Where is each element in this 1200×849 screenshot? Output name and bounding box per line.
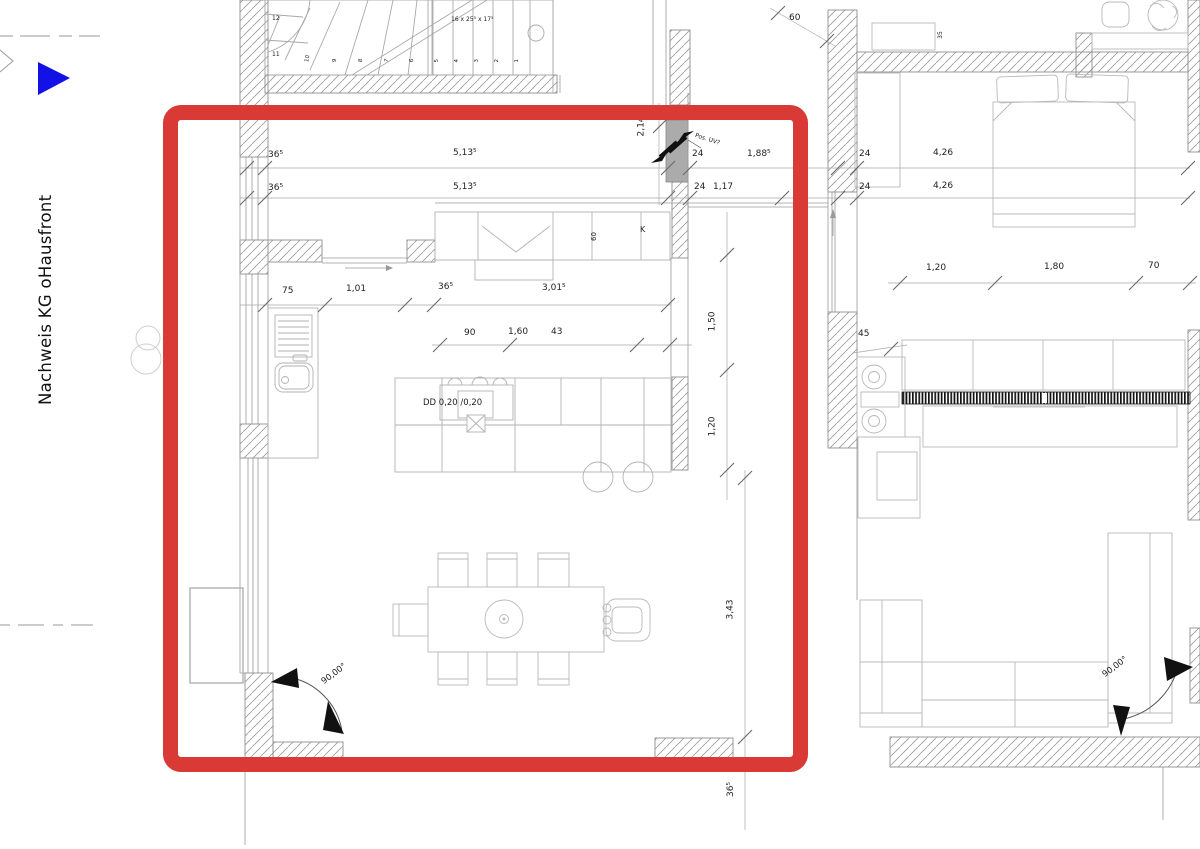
stair-number: 8: [359, 59, 365, 63]
bedroom-furniture: [855, 0, 1190, 518]
stair-number: 9: [333, 59, 339, 63]
pillow: [1066, 74, 1129, 103]
stair-number: 4: [455, 59, 461, 63]
speaker-cabinet: [857, 357, 905, 437]
stair-number: 1: [515, 59, 521, 63]
highlight-frame: [163, 105, 808, 772]
stool: [1102, 2, 1129, 27]
pillow: [997, 75, 1059, 103]
dim-label: 36⁵: [727, 782, 736, 797]
side-vertical-label: Nachweis KG oHausfront: [38, 195, 55, 405]
stair-number: 5: [435, 59, 441, 63]
blue-arrow-marker: [38, 62, 70, 95]
dim-label: 45: [858, 330, 869, 339]
stair-number: 3: [475, 59, 481, 63]
dim-label: 4,26: [933, 149, 953, 158]
dim-label: 60: [789, 14, 800, 23]
dim-label: 35: [938, 31, 944, 39]
margin-marks: [0, 36, 161, 625]
nightstand: [872, 23, 935, 50]
dim-label: 24: [859, 150, 870, 159]
closet-row: [902, 340, 1185, 390]
headboard-shelf: [1092, 33, 1188, 49]
stair-formula: 16 x 25⁵ x 17⁵: [451, 17, 493, 23]
dim-label: 70: [1148, 262, 1159, 271]
dim-label: 4,26: [933, 182, 953, 191]
dim-label: 24: [859, 183, 870, 192]
bed: [993, 102, 1135, 227]
stair-number: 7: [385, 59, 391, 63]
stair-number: 12: [272, 16, 280, 22]
dim-label: 1,20: [926, 264, 946, 273]
floor-plan-canvas: Nachweis KG oHausfront 16 x 25⁵ x 17⁵ 12…: [0, 0, 1200, 849]
wardrobe: [855, 73, 900, 187]
dim-label: 1,80: [1044, 263, 1064, 272]
stair-number: 6: [410, 59, 416, 63]
plant: [1148, 0, 1178, 31]
stair-number: 11: [272, 52, 280, 58]
sofa: [860, 533, 1172, 727]
stair-number: 2: [495, 59, 501, 63]
